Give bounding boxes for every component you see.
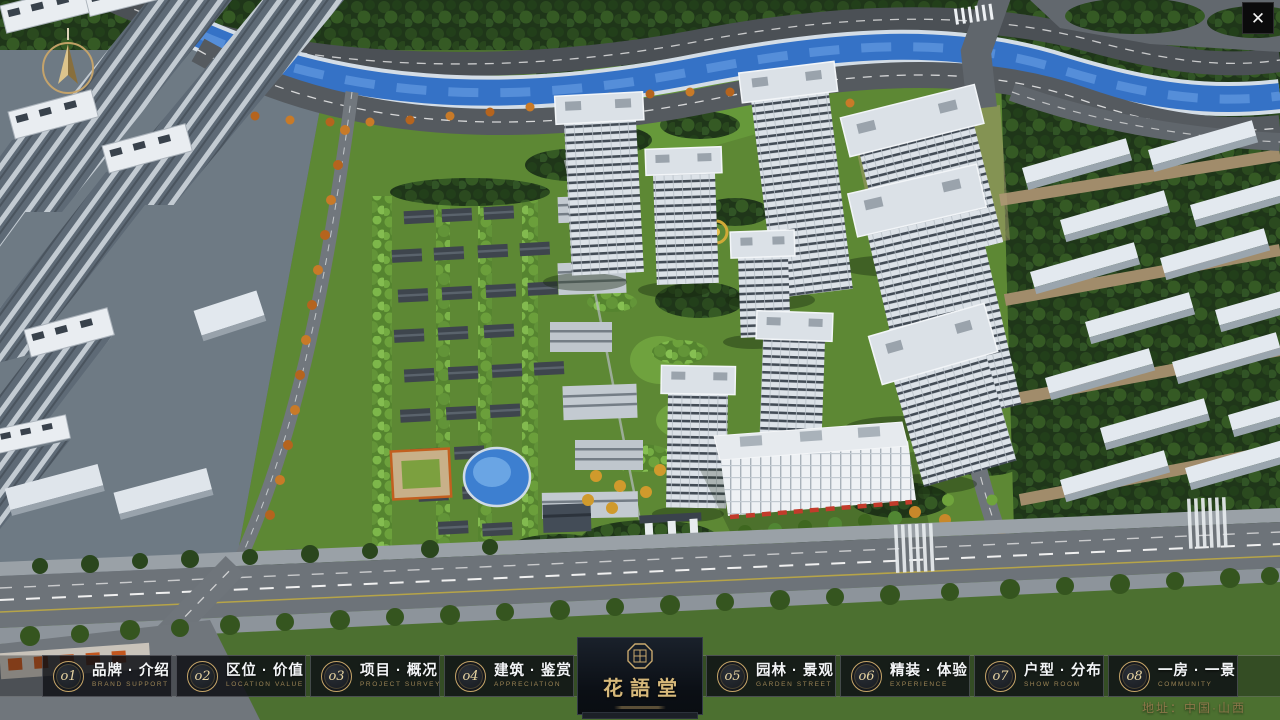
nav-sublabel: BRAND SUPPORT	[92, 682, 170, 689]
nav-badge-5: o5	[717, 661, 748, 692]
project-logo-panel[interactable]: 花語堂	[577, 637, 703, 715]
seal-icon	[627, 643, 653, 669]
nav-item-views[interactable]: o8 一房 · 一景 COMMUNITY	[1108, 655, 1238, 697]
nav-badge-1: o1	[53, 661, 84, 692]
nav-sublabel: EXPERIENCE	[890, 682, 968, 689]
project-logo-caption	[614, 706, 666, 709]
nav-label: 精装 · 体验	[890, 664, 968, 679]
nav-badge-4: o4	[455, 661, 486, 692]
compass-icon	[38, 28, 98, 98]
nav-sublabel: COMMUNITY	[1158, 682, 1236, 689]
nav-item-location[interactable]: o2 区位 · 价值 LOCATION VALUE	[176, 655, 306, 697]
nav-sublabel: SHOW ROOM	[1024, 682, 1102, 689]
app-window: ✕ o1 品牌 · 介绍 BRAND SUPPORT o2 区位 · 价值 LO…	[0, 0, 1280, 720]
nav-badge-2: o2	[187, 661, 218, 692]
nav-label: 园林 · 景观	[756, 664, 834, 679]
nav-label: 建筑 · 鉴赏	[494, 664, 572, 679]
nav-badge-3: o3	[321, 661, 352, 692]
nav-item-architecture[interactable]: o4 建筑 · 鉴赏 APPRECIATION	[444, 655, 574, 697]
nav-item-interior[interactable]: o6 精装 · 体验 EXPERIENCE	[840, 655, 970, 697]
nav-label: 项目 · 概况	[360, 664, 441, 679]
nav-item-floorplan[interactable]: o7 户型 · 分布 SHOW ROOM	[974, 655, 1104, 697]
masterplan-viewport[interactable]	[0, 0, 1280, 720]
nav-item-garden[interactable]: o5 园林 · 景观 GARDEN STREET	[706, 655, 836, 697]
nav-badge-7: o7	[985, 661, 1016, 692]
nav-item-project[interactable]: o3 项目 · 概况 PROJECT SURVEY	[310, 655, 440, 697]
project-address: 地址：中国·山西	[1142, 699, 1246, 716]
nav-sublabel: GARDEN STREET	[756, 682, 834, 689]
nav-item-brand[interactable]: o1 品牌 · 介绍 BRAND SUPPORT	[42, 655, 172, 697]
nav-badge-8: o8	[1119, 661, 1150, 692]
nav-badge-6: o6	[851, 661, 882, 692]
nav-label: 一房 · 一景	[1158, 664, 1236, 679]
project-logo-title: 花語堂	[603, 672, 684, 701]
nav-sublabel: LOCATION VALUE	[226, 682, 304, 689]
nav-sublabel: APPRECIATION	[494, 682, 572, 689]
nav-sublabel: PROJECT SURVEY	[360, 682, 441, 689]
nav-label: 品牌 · 介绍	[92, 664, 170, 679]
nav-label: 区位 · 价值	[226, 664, 304, 679]
close-button[interactable]: ✕	[1242, 2, 1274, 34]
masterplan-render	[0, 0, 1280, 720]
nav-label: 户型 · 分布	[1024, 664, 1102, 679]
